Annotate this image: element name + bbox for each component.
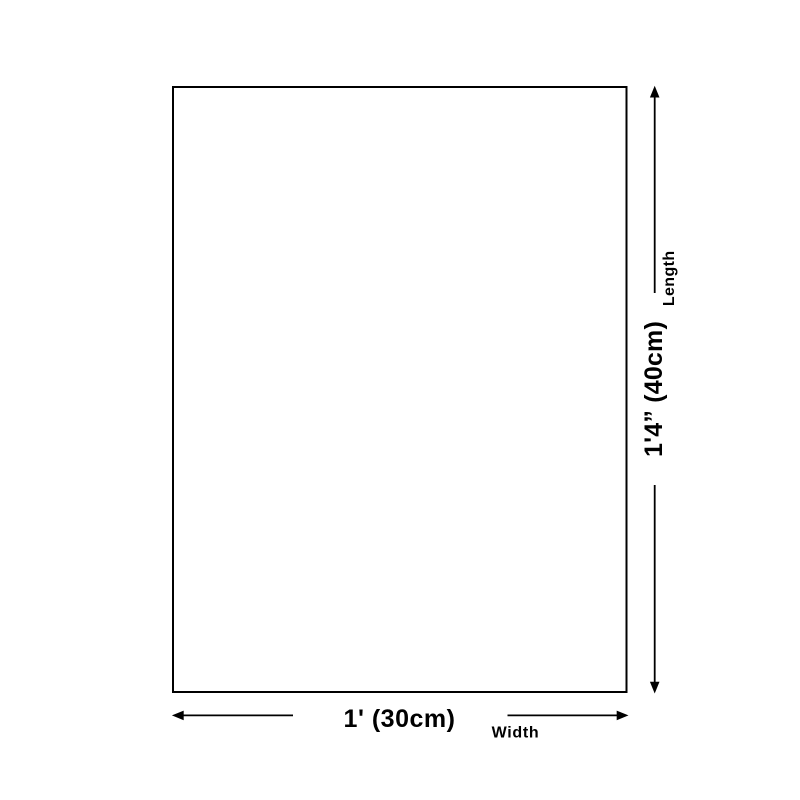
svg-text:1' (30cm): 1' (30cm) [344,705,456,733]
svg-text:Width: Width [492,725,540,742]
svg-text:Length: Length [661,250,678,306]
svg-text:1'4” (40cm): 1'4” (40cm) [640,321,668,457]
